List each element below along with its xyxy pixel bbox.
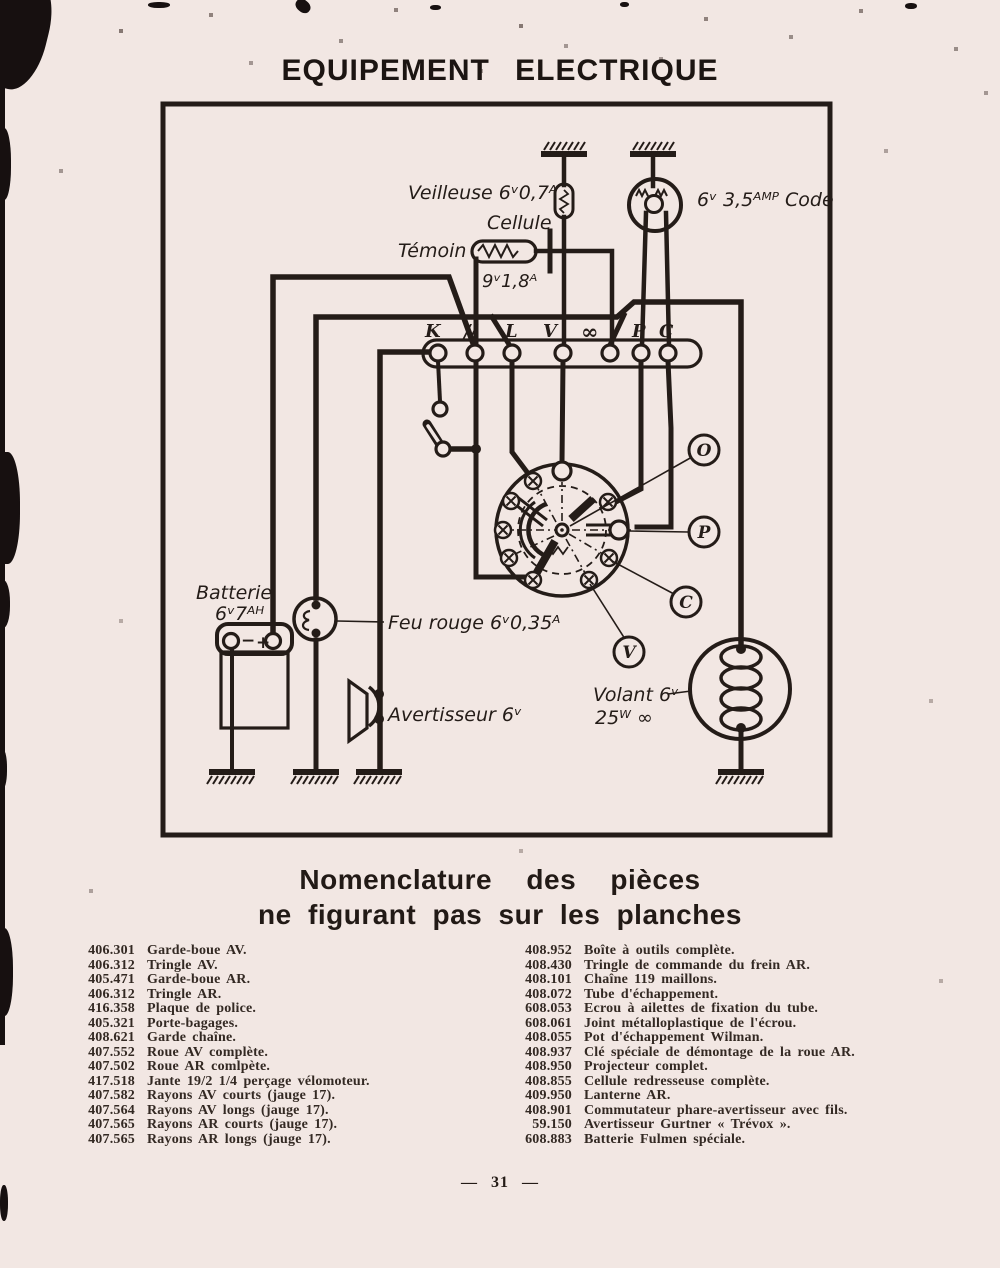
part-ref: 408.937	[512, 1046, 572, 1061]
nomenclature-heading-line1: Nomenclature des pièces	[0, 864, 1000, 896]
part-desc: Chaîne 119 maillons.	[584, 973, 717, 988]
part-row: 59.150Avertisseur Gurtner « Trévox ».	[512, 1118, 982, 1133]
callout-o: O	[697, 441, 712, 461]
part-row: 408.621Garde chaîne.	[75, 1031, 505, 1046]
part-row: 407.502Roue AR comlpète.	[75, 1060, 505, 1075]
rectifier-cell	[472, 241, 536, 262]
part-desc: Tringle AV.	[147, 959, 218, 974]
part-desc: Batterie Fulmen spéciale.	[584, 1133, 745, 1148]
label-feu-rouge: Feu rouge 6ᵛ0,35ᴬ	[388, 612, 560, 634]
ground-symbol	[354, 772, 402, 784]
ground-symbol	[207, 772, 255, 784]
part-ref: 408.072	[512, 988, 572, 1003]
part-ref: 408.430	[512, 959, 572, 974]
part-ref: 408.855	[512, 1075, 572, 1090]
part-ref: 608.061	[512, 1017, 572, 1032]
terminal-label-p: P	[631, 321, 646, 342]
part-desc: Rayons AR courts (jauge 17).	[147, 1118, 337, 1133]
terminal-label-k: K	[424, 321, 442, 342]
part-row: 407.552Roue AV complète.	[75, 1046, 505, 1061]
part-ref: 407.502	[75, 1060, 135, 1075]
part-row: 408.055Pot d'échappement Wilman.	[512, 1031, 982, 1046]
terminal-label-inf: ∞	[581, 319, 599, 344]
junction-dot	[471, 444, 481, 454]
part-desc: Clé spéciale de démontage de la roue AR.	[584, 1046, 855, 1061]
part-ref: 408.901	[512, 1104, 572, 1119]
part-desc: Garde-boue AV.	[147, 944, 247, 959]
part-row: 408.430Tringle de commande du frein AR.	[512, 959, 982, 974]
tail-lamp	[294, 598, 384, 640]
part-desc: Tringle AR.	[147, 988, 221, 1003]
part-row: 407.564Rayons AV longs (jauge 17).	[75, 1104, 505, 1119]
part-row: 408.901Commutateur phare-avertisseur ave…	[512, 1104, 982, 1119]
part-desc: Cellule redresseuse complète.	[584, 1075, 770, 1090]
part-desc: Commutateur phare-avertisseur avec fils.	[584, 1104, 848, 1119]
part-ref: 416.358	[75, 1002, 135, 1017]
part-row: 408.101Chaîne 119 maillons.	[512, 973, 982, 988]
part-ref: 407.564	[75, 1104, 135, 1119]
part-desc: Plaque de police.	[147, 1002, 256, 1017]
page-number: — 31 —	[0, 1174, 1000, 1192]
part-desc: Projecteur complet.	[584, 1060, 708, 1075]
terminal-label-slash: //	[462, 321, 480, 342]
nomenclature-heading-line2: ne figurant pas sur les planches	[0, 899, 1000, 931]
parts-list-right: 408.952Boîte à outils complète.408.430Tr…	[512, 944, 982, 1147]
part-ref: 408.055	[512, 1031, 572, 1046]
part-ref: 608.883	[512, 1133, 572, 1148]
battery-minus-sign: −	[241, 631, 255, 651]
part-ref: 409.950	[512, 1089, 572, 1104]
part-ref: 406.301	[75, 944, 135, 959]
part-desc: Rayons AR longs (jauge 17).	[147, 1133, 331, 1148]
part-ref: 405.321	[75, 1017, 135, 1032]
part-desc: Roue AR comlpète.	[147, 1060, 270, 1075]
part-row: 406.312Tringle AV.	[75, 959, 505, 974]
part-ref: 407.582	[75, 1089, 135, 1104]
part-row: 406.301Garde-boue AV.	[75, 944, 505, 959]
part-desc: Garde-boue AR.	[147, 973, 250, 988]
label-batterie-1: Batterie	[196, 582, 272, 604]
parts-list-left: 406.301Garde-boue AV.406.312Tringle AV.4…	[75, 944, 505, 1147]
part-row: 409.950Lanterne AR.	[512, 1089, 982, 1104]
label-cellule: Cellule	[487, 212, 552, 234]
part-ref: 417.518	[75, 1075, 135, 1090]
part-row: 405.321Porte-bagages.	[75, 1017, 505, 1032]
part-row: 608.883Batterie Fulmen spéciale.	[512, 1133, 982, 1148]
part-ref: 405.471	[75, 973, 135, 988]
part-ref: 608.053	[512, 1002, 572, 1017]
part-row: 608.053Ecrou à ailettes de fixation du t…	[512, 1002, 982, 1017]
part-ref: 408.621	[75, 1031, 135, 1046]
battery: − +	[217, 624, 292, 728]
part-desc: Lanterne AR.	[584, 1089, 671, 1104]
label-volant-2: 25ᵂ ∞	[595, 707, 653, 729]
battery-plus-sign: +	[256, 633, 270, 653]
part-desc: Garde chaîne.	[147, 1031, 236, 1046]
part-row: 417.518Jante 19/2 1/4 perçage vélomoteur…	[75, 1075, 505, 1090]
part-desc: Tringle de commande du frein AR.	[584, 959, 810, 974]
part-desc: Roue AV complète.	[147, 1046, 268, 1061]
ground-symbol	[291, 772, 339, 784]
terminal-label-c: C	[659, 321, 674, 342]
part-row: 408.952Boîte à outils complète.	[512, 944, 982, 959]
label-batterie-2: 6ᵛ7ᴬᴴ	[215, 603, 264, 625]
label-avertisseur: Avertisseur 6ᵛ	[386, 704, 522, 726]
callout-p: P	[697, 523, 712, 543]
label-cellule-rating: 9ᵛ1,8ᴬ	[482, 271, 537, 292]
label-temoin: Témoin	[398, 240, 466, 262]
part-desc: Rayons AV courts (jauge 17).	[147, 1089, 335, 1104]
scan-blob	[0, 928, 13, 1016]
part-row: 416.358Plaque de police.	[75, 1002, 505, 1017]
part-ref: 407.565	[75, 1133, 135, 1148]
part-row: 407.565Rayons AR courts (jauge 17).	[75, 1118, 505, 1133]
part-row: 408.950Projecteur complet.	[512, 1060, 982, 1075]
ground-symbol	[541, 142, 587, 154]
part-row: 406.312Tringle AR.	[75, 988, 505, 1003]
callout-v: V	[622, 643, 637, 663]
part-desc: Rayons AV longs (jauge 17).	[147, 1104, 329, 1119]
label-veilleuse: Veilleuse 6ᵛ0,7ᴬ	[408, 182, 557, 204]
terminal-label-v: V	[543, 321, 559, 342]
part-desc: Jante 19/2 1/4 perçage vélomoteur.	[147, 1075, 370, 1090]
part-desc: Tube d'échappement.	[584, 988, 718, 1003]
kick-switch	[427, 402, 450, 456]
ground-symbol	[630, 142, 676, 154]
part-ref: 406.312	[75, 988, 135, 1003]
callout-c: C	[679, 593, 693, 613]
part-row: 608.061Joint métalloplastique de l'écrou…	[512, 1017, 982, 1032]
part-ref: 408.101	[512, 973, 572, 988]
part-ref: 59.150	[512, 1118, 572, 1133]
part-desc: Avertisseur Gurtner « Trévox ».	[584, 1118, 791, 1133]
part-row: 405.471Garde-boue AR.	[75, 973, 505, 988]
terminal-label-l: L	[504, 321, 518, 342]
part-ref: 407.552	[75, 1046, 135, 1061]
wiring-diagram: K // L V ∞ P C	[0, 0, 1000, 852]
pilot-bulb	[555, 184, 573, 218]
part-row: 407.565Rayons AR longs (jauge 17).	[75, 1133, 505, 1148]
part-row: 407.582Rayons AV courts (jauge 17).	[75, 1089, 505, 1104]
part-desc: Joint métalloplastique de l'écrou.	[584, 1017, 796, 1032]
label-volant-1: Volant 6ᵛ	[593, 684, 679, 706]
flywheel-generator	[668, 639, 790, 739]
ground-symbol	[716, 772, 764, 784]
rotary-switch	[495, 462, 631, 596]
part-desc: Porte-bagages.	[147, 1017, 238, 1032]
part-ref: 407.565	[75, 1118, 135, 1133]
label-code: 6ᵛ 3,5ᴬᴹᴾ Code	[697, 189, 834, 211]
part-row: 408.855Cellule redresseuse complète.	[512, 1075, 982, 1090]
part-row: 408.937Clé spéciale de démontage de la r…	[512, 1046, 982, 1061]
part-desc: Pot d'échappement Wilman.	[584, 1031, 763, 1046]
part-ref: 408.952	[512, 944, 572, 959]
part-desc: Ecrou à ailettes de fixation du tube.	[584, 1002, 818, 1017]
scanned-manual-page: { "colors":{"paper":"#f2e7e3","ink":"#24…	[0, 0, 1000, 1268]
part-row: 408.072Tube d'échappement.	[512, 988, 982, 1003]
part-ref: 406.312	[75, 959, 135, 974]
part-desc: Boîte à outils complète.	[584, 944, 735, 959]
part-ref: 408.950	[512, 1060, 572, 1075]
wires	[232, 155, 741, 770]
